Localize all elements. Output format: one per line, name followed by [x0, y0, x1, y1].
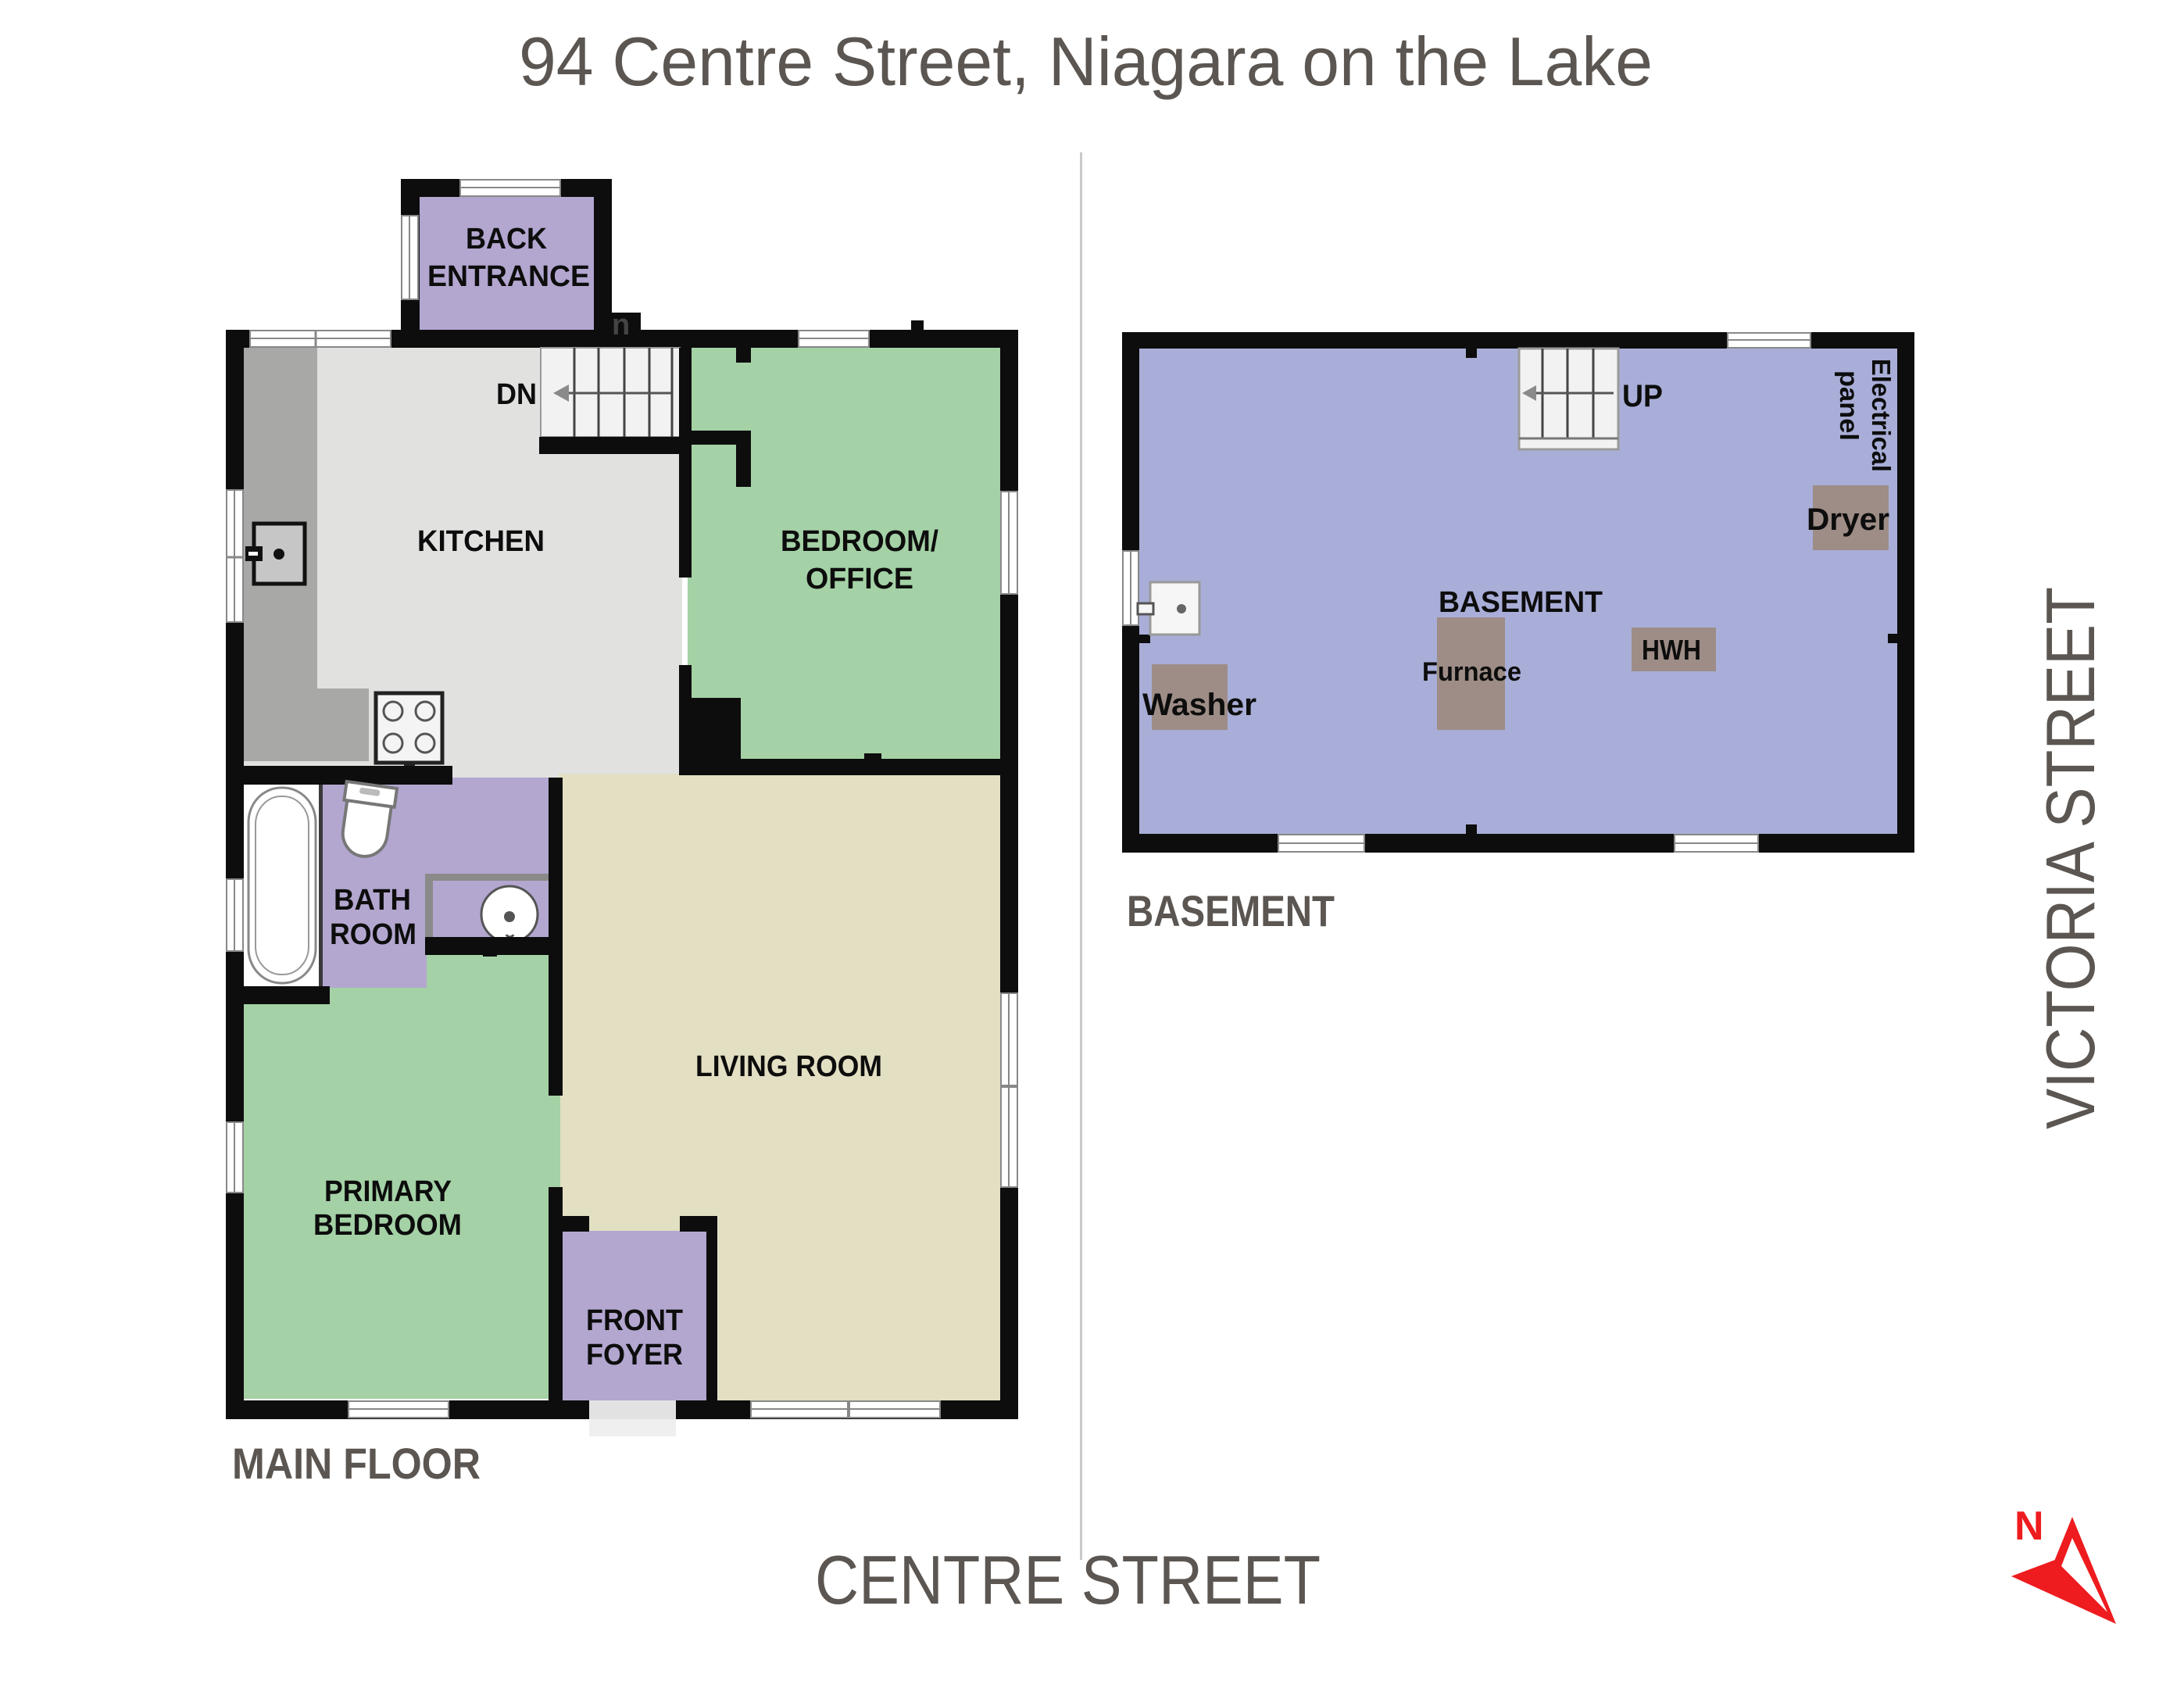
- svg-text:94 Centre Street, Niagara on t: 94 Centre Street, Niagara on the Lake: [519, 23, 1653, 100]
- svg-text:HWH: HWH: [1642, 634, 1701, 666]
- svg-text:BATH: BATH: [334, 884, 411, 917]
- svg-text:BACK: BACK: [466, 223, 548, 256]
- svg-text:Furnace: Furnace: [1422, 657, 1521, 687]
- svg-text:MAIN FLOOR: MAIN FLOOR: [232, 1439, 481, 1488]
- svg-text:FOYER: FOYER: [586, 1339, 683, 1371]
- svg-text:n: n: [612, 309, 630, 342]
- svg-text:BASEMENT: BASEMENT: [1127, 886, 1335, 935]
- svg-text:Dryer: Dryer: [1807, 502, 1889, 537]
- svg-text:ROOM: ROOM: [330, 918, 416, 951]
- svg-text:BEDROOM: BEDROOM: [313, 1209, 462, 1242]
- svg-text:N: N: [2014, 1504, 2044, 1549]
- svg-text:DN: DN: [496, 378, 537, 411]
- svg-text:BEDROOM/: BEDROOM/: [781, 525, 938, 558]
- svg-text:BASEMENT: BASEMENT: [1439, 586, 1603, 619]
- svg-text:LIVING ROOM: LIVING ROOM: [695, 1050, 882, 1083]
- svg-text:CENTRE STREET: CENTRE STREET: [815, 1541, 1321, 1618]
- svg-text:KITCHEN: KITCHEN: [417, 525, 545, 558]
- svg-text:UP: UP: [1622, 379, 1663, 413]
- svg-text:Washer: Washer: [1142, 688, 1256, 722]
- svg-text:VICTORIA STREET: VICTORIA STREET: [2032, 587, 2109, 1129]
- svg-text:OFFICE: OFFICE: [806, 563, 913, 595]
- svg-text:ENTRANCE: ENTRANCE: [427, 260, 590, 293]
- svg-text:FRONT: FRONT: [586, 1304, 683, 1337]
- svg-text:panel: panel: [1835, 370, 1864, 441]
- svg-text:Electrical: Electrical: [1867, 359, 1896, 472]
- svg-text:PRIMARY: PRIMARY: [324, 1175, 452, 1208]
